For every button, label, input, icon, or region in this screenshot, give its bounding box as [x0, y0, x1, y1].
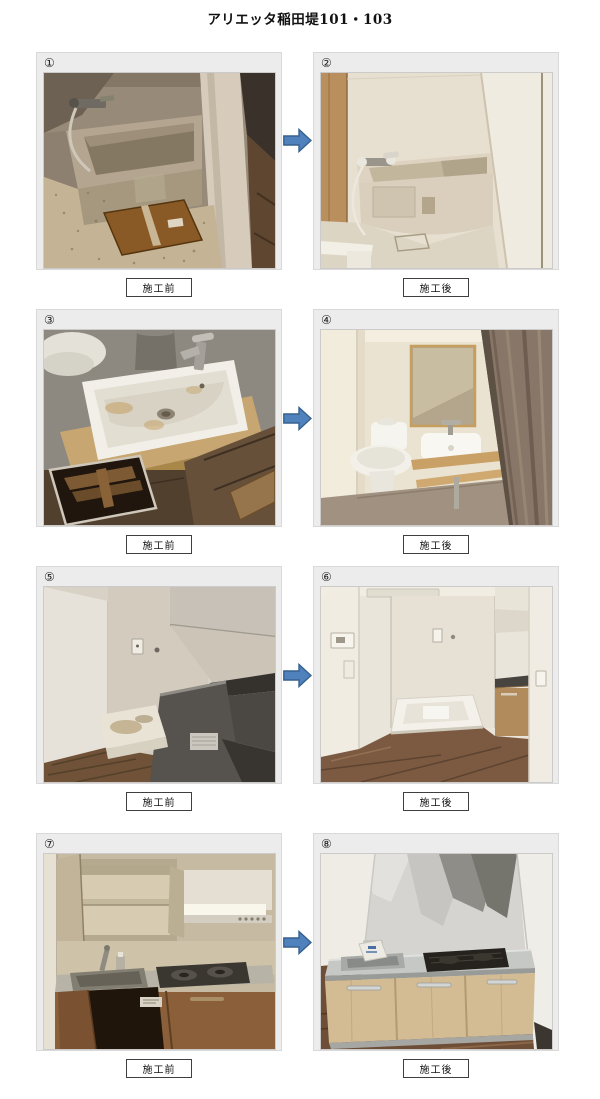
photo-3-before-image — [44, 587, 275, 782]
photo-number: ③ — [44, 312, 55, 328]
report-page: アリエッタ稲田堤101・103 ① — [0, 0, 600, 1099]
photo-number: ② — [321, 55, 332, 71]
photo-panel-2-before: ③ — [36, 309, 282, 527]
caption-before: 施工前 — [126, 535, 192, 554]
photo-panel-3-after: ⑥ — [313, 566, 559, 784]
photo-panel-3-before: ⑤ — [36, 566, 282, 784]
arrow-cell — [282, 566, 313, 688]
page-title: アリエッタ稲田堤101・103 — [0, 8, 600, 28]
arrow-right-icon — [283, 406, 312, 431]
caption-after: 施工後 — [403, 278, 469, 297]
photo-1-after — [321, 73, 552, 268]
photo-row-2: ③ — [36, 309, 559, 554]
arrow-right-icon — [283, 128, 312, 153]
caption-after: 施工後 — [403, 535, 469, 554]
photo-3-before — [44, 587, 275, 782]
photo-4-after — [321, 854, 552, 1049]
photo-panel-2-after: ④ — [313, 309, 559, 527]
photo-1-before-image — [44, 73, 275, 268]
photo-1-before — [44, 73, 275, 268]
caption-after: 施工後 — [403, 1059, 469, 1078]
arrow-cell — [282, 52, 313, 153]
photo-number: ④ — [321, 312, 332, 328]
photo-3-after — [321, 587, 552, 782]
arrow-right-icon — [283, 663, 312, 688]
photo-4-after-image — [321, 854, 552, 1049]
photo-4-before — [44, 854, 275, 1049]
photo-2-after-image — [321, 330, 552, 525]
photo-number: ⑧ — [321, 836, 332, 852]
photo-1-after-image — [321, 73, 552, 268]
caption-before: 施工前 — [126, 278, 192, 297]
photo-3-after-image — [321, 587, 552, 782]
photo-4-before-image — [44, 854, 275, 1049]
photo-number: ⑤ — [44, 569, 55, 585]
arrow-cell — [282, 309, 313, 431]
photo-2-before-image — [44, 330, 275, 525]
photo-row-1: ① — [36, 52, 559, 297]
caption-before: 施工前 — [126, 1059, 192, 1078]
photo-row-3: ⑤ — [36, 566, 559, 811]
photo-number: ⑦ — [44, 836, 55, 852]
caption-before: 施工前 — [126, 792, 192, 811]
arrow-cell — [282, 833, 313, 955]
caption-after: 施工後 — [403, 792, 469, 811]
photo-row-4: ⑦ — [36, 833, 559, 1078]
photo-2-after — [321, 330, 552, 525]
photo-number: ① — [44, 55, 55, 71]
photo-2-before — [44, 330, 275, 525]
photo-panel-4-after: ⑧ — [313, 833, 559, 1051]
photo-number: ⑥ — [321, 569, 332, 585]
photo-panel-1-before: ① — [36, 52, 282, 270]
photo-panel-4-before: ⑦ — [36, 833, 282, 1051]
arrow-right-icon — [283, 930, 312, 955]
photo-panel-1-after: ② — [313, 52, 559, 270]
